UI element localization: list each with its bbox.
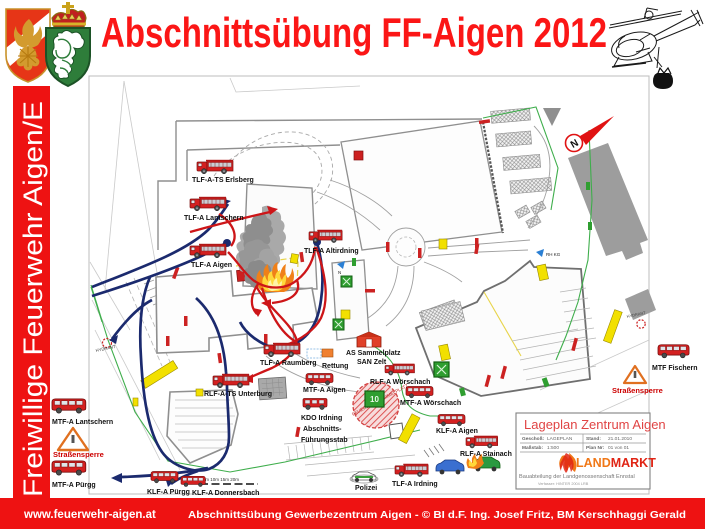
svg-text:MTF-A Aigen: MTF-A Aigen [303,387,346,394]
svg-text:Polizei: Polizei [355,485,377,492]
svg-text:Bauabteilung der Landgenossens: Bauabteilung der Landgenossenschaft Enns… [519,474,635,480]
svg-text:MTF-A Wörschach: MTF-A Wörschach [400,400,461,407]
svg-text:RLF-A-TS Unterburg: RLF-A-TS Unterburg [204,391,272,398]
svg-text:RLF-A Stainach: RLF-A Stainach [460,451,512,458]
svg-text:Führungsstab: Führungsstab [301,437,348,444]
svg-text:LANDMARKT: LANDMARKT [576,456,656,470]
svg-text:Stand:: Stand: [586,436,601,442]
svg-text:Lageplan Zentrum Aigen: Lageplan Zentrum Aigen [524,417,666,432]
svg-text:TLF-A Lantschern: TLF-A Lantschern [184,215,244,222]
svg-text:N: N [338,270,341,275]
svg-text:LAGEPLAN: LAGEPLAN [547,436,573,442]
svg-text:SAN Zelt: SAN Zelt [357,359,387,366]
svg-text:TLF-A-TS Erlsberg: TLF-A-TS Erlsberg [192,177,254,184]
svg-text:KLF-A Donnersbach: KLF-A Donnersbach [192,490,259,497]
svg-text:Geschoß:: Geschoß: [522,436,545,442]
svg-text:21.01.2010: 21.01.2010 [608,436,632,442]
svg-text:Abschnitts-: Abschnitts- [303,426,342,433]
svg-text:01 von 01: 01 von 01 [608,445,629,451]
svg-text:KDO Irdning: KDO Irdning [301,415,342,422]
svg-text:MTF-A Lantschern: MTF-A Lantschern [52,419,113,426]
svg-text:KLF-A Aigen: KLF-A Aigen [436,428,478,435]
svg-text:Straßensperre: Straßensperre [612,386,663,395]
svg-text:MTF-A Pürgg: MTF-A Pürgg [52,482,96,489]
svg-text:TLF-A Altirdning: TLF-A Altirdning [304,248,359,255]
svg-text:Verfasser: HINTER 2004 LRB: Verfasser: HINTER 2004 LRB [538,482,589,486]
svg-text:TLF-A Irdning: TLF-A Irdning [392,481,438,488]
svg-text:Maßstab:: Maßstab: [522,445,543,451]
svg-text:10: 10 [370,395,379,404]
svg-text:Straßensperre: Straßensperre [53,450,104,459]
svg-text:www.feuerwehr-aigen.at: www.feuerwehr-aigen.at [23,509,156,521]
svg-text:Abschnittsübung FF-Aigen 2012: Abschnittsübung FF-Aigen 2012 [101,9,607,56]
svg-text:Rettung: Rettung [322,363,348,370]
svg-text:KLF-A Pürgg: KLF-A Pürgg [147,489,190,496]
svg-text:Freiwillige Feuerwehr Aigen/E: Freiwillige Feuerwehr Aigen/E [18,101,48,497]
svg-text:1:500: 1:500 [547,445,559,451]
svg-text:RLF-A Wörschach: RLF-A Wörschach [370,379,430,386]
svg-text:TLF-A Aigen: TLF-A Aigen [191,262,232,269]
svg-text:MTF Fischern: MTF Fischern [652,365,698,372]
svg-text:RH KG: RH KG [546,252,561,257]
svg-text:Abschnittsübung Gewerbezentrum: Abschnittsübung Gewerbezentrum Aigen - ©… [188,510,686,521]
svg-text:Plan Nr:: Plan Nr: [586,445,605,451]
svg-text:TLF-A Raumberg: TLF-A Raumberg [260,360,317,367]
svg-text:AS Sammelplatz: AS Sammelplatz [346,350,401,357]
